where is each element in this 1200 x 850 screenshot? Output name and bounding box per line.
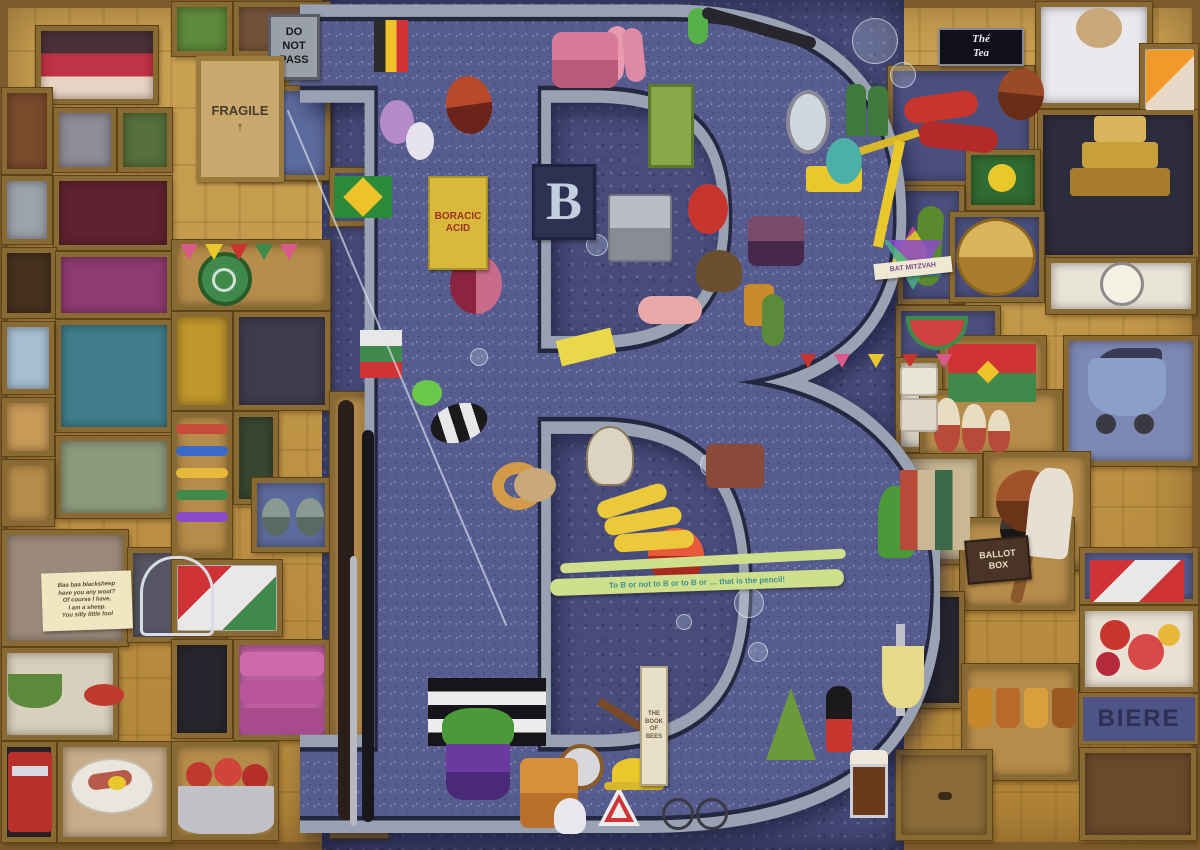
bicycle-wheel xyxy=(696,798,728,830)
satchel xyxy=(706,444,764,488)
basil-bucket xyxy=(446,744,510,800)
babel-tower-tier xyxy=(1094,116,1146,142)
cell-knob-drawer xyxy=(2,248,56,318)
fried-egg xyxy=(108,776,126,790)
apple xyxy=(186,762,212,788)
ornate-letter-b-plaque-line: B xyxy=(546,168,582,236)
bicycle-wheel xyxy=(662,798,694,830)
spice-jar xyxy=(1052,688,1076,728)
bubble xyxy=(676,614,692,630)
towel xyxy=(240,680,324,704)
towel xyxy=(240,708,324,734)
drawer-knob xyxy=(938,792,952,800)
tea-label: ThéTea xyxy=(938,28,1024,66)
bongo-drum xyxy=(748,216,804,266)
towel xyxy=(240,652,324,676)
bus-windows xyxy=(12,766,48,776)
do-not-pass-sign-line: DO xyxy=(286,26,303,40)
green-door xyxy=(648,84,694,168)
london-bus xyxy=(8,752,52,832)
green-flag-disc xyxy=(988,164,1016,192)
abacus-row xyxy=(176,512,228,522)
flower xyxy=(1096,652,1120,676)
cell-mustard-book xyxy=(172,312,232,410)
fabric-bolt xyxy=(552,32,618,88)
abacus-row xyxy=(176,468,228,478)
cell-porridge xyxy=(234,312,330,410)
birdcage-dome xyxy=(140,556,214,636)
matryoshka xyxy=(962,404,986,452)
flower xyxy=(1158,624,1180,646)
pram-wheel xyxy=(1096,414,1116,434)
spice-jar xyxy=(996,688,1020,728)
belgium-flag xyxy=(374,20,408,72)
spaghetti xyxy=(882,646,924,708)
matryoshka xyxy=(988,410,1010,452)
binoculars-lens xyxy=(296,498,324,536)
bubble xyxy=(890,62,916,88)
do-not-pass-sign-line: NOT xyxy=(282,40,305,54)
shakespeare-ribbon-line: To B or not to B or to B or … that is th… xyxy=(609,574,786,590)
book-of-bees-spine: THEBOOKOFBEES xyxy=(640,666,668,786)
fragile-box-line: ↑ xyxy=(237,119,244,135)
cell-gentlemen xyxy=(56,436,172,518)
tartan-bag xyxy=(900,470,970,550)
white-balloon xyxy=(406,122,434,160)
green-wellington xyxy=(868,86,888,136)
clarinet xyxy=(362,430,374,822)
tea-label-line: Thé xyxy=(972,33,990,47)
flute xyxy=(350,556,357,826)
beer-glass xyxy=(850,764,888,818)
biere-sign-line: BIERE xyxy=(1098,704,1181,734)
shakespeare-portrait xyxy=(586,426,634,486)
soup-bowl xyxy=(8,674,62,708)
biere-sign: BIERE xyxy=(1080,694,1198,744)
red-stool xyxy=(84,684,124,706)
fragile-box: FRAGILE↑ xyxy=(196,56,284,182)
cell-bottle-basket xyxy=(118,108,172,172)
spice-jar xyxy=(1024,688,1048,728)
bitters-bottle xyxy=(762,294,784,346)
bubble xyxy=(734,588,764,618)
cell-purple-bed xyxy=(56,252,172,318)
flower xyxy=(1100,620,1130,650)
ballot-box-line: BOX xyxy=(988,559,1008,572)
cell-lighthouse xyxy=(2,322,54,394)
bubble xyxy=(470,348,488,366)
book-of-bees-spine-line: OF xyxy=(650,726,658,734)
green-wellington xyxy=(846,84,866,136)
green-butterfly xyxy=(412,380,442,406)
cell-bread-basket xyxy=(2,398,54,456)
barometer-dial xyxy=(1100,262,1144,306)
baby-pram xyxy=(1088,358,1166,416)
kiwi-bird xyxy=(696,250,742,292)
cell-green-nook xyxy=(172,2,232,56)
hat-box xyxy=(900,398,938,432)
bulldog xyxy=(514,468,556,502)
book-of-bees-spine-line: BEES xyxy=(646,734,662,742)
sheep-poem-note: Baa baa blacksheephave you any wool?Of c… xyxy=(41,570,133,631)
teal-mask xyxy=(826,138,862,184)
tea-label-line: Tea xyxy=(973,47,989,61)
cell-bap-and-flowers xyxy=(56,320,172,432)
ornate-letter-b-plaque: B xyxy=(532,164,596,240)
red-balloon xyxy=(688,184,728,234)
pram-wheel xyxy=(1134,414,1154,434)
book-of-bees-spine-line: THE xyxy=(648,711,660,719)
signal-flag xyxy=(1090,560,1184,602)
artist-credit: © Colin Thompson 2015 xyxy=(1107,840,1190,847)
cell-berry-shelf xyxy=(54,176,172,250)
cell-music-box xyxy=(1080,748,1196,840)
binoculars-lens xyxy=(262,498,290,536)
fragile-box-line: FRAGILE xyxy=(211,103,268,119)
bhutan-flag xyxy=(1146,50,1194,110)
bat-mitzvah-banner-line: BAT MITZVAH xyxy=(889,261,936,275)
cell-cat-and-boots xyxy=(172,640,232,738)
abacus-row xyxy=(176,446,228,456)
boracic-acid-tin: BORACICACID xyxy=(428,176,488,270)
bain-marie xyxy=(608,194,672,262)
abacus-row xyxy=(176,424,228,434)
hat-box xyxy=(900,366,938,396)
babel-tower-tier xyxy=(1070,168,1170,196)
bubble xyxy=(748,642,768,662)
bichon-dog xyxy=(554,798,586,834)
apple xyxy=(214,758,242,786)
boracic-acid-tin-line: ACID xyxy=(446,223,470,236)
sheep-poem-note-line: You silly little fool xyxy=(62,611,113,620)
book-of-bees-spine-line: BOOK xyxy=(645,719,663,727)
bubble xyxy=(852,18,898,64)
spice-jar xyxy=(968,688,992,728)
bulgaria-flag xyxy=(360,330,402,378)
cell-wire-bale xyxy=(2,176,52,244)
bronze-coin xyxy=(956,218,1036,296)
cell-concert-picture xyxy=(36,26,158,104)
awesome-alphabet-b-artwork: B B © Colin Thompson 2015 DONOTPASSFRAGI… xyxy=(0,0,1200,850)
abacus-row xyxy=(176,490,228,500)
busby-guard xyxy=(826,686,852,752)
babel-tower-tier xyxy=(1082,142,1158,168)
terrier-head xyxy=(1076,8,1122,48)
boracic-acid-tin-line: BORACIC xyxy=(435,211,482,224)
cell-button-drawer xyxy=(2,88,52,174)
bicycle-sign-wheel xyxy=(212,268,236,292)
hand-mirror xyxy=(786,90,830,154)
cell-black-poodle xyxy=(54,108,116,172)
apple-tub xyxy=(178,786,274,834)
piglets xyxy=(638,296,702,324)
cell-stick-insect xyxy=(2,460,54,526)
ballot-box: BALLOTBOX xyxy=(964,535,1032,584)
